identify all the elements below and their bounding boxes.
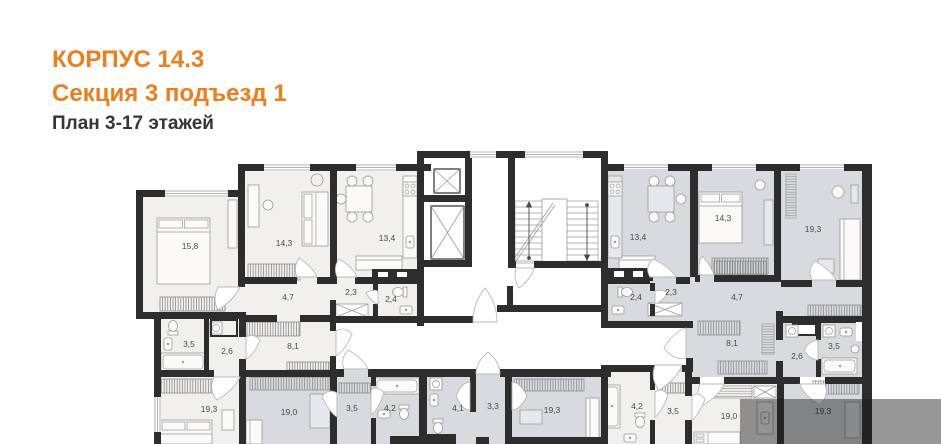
svg-text:4,2: 4,2 (631, 401, 643, 411)
svg-text:3,5: 3,5 (828, 341, 840, 351)
svg-text:14,3: 14,3 (276, 238, 293, 248)
svg-text:4,1: 4,1 (452, 403, 464, 413)
svg-text:2,4: 2,4 (385, 294, 397, 304)
svg-text:3,5: 3,5 (183, 339, 195, 349)
svg-text:14,3: 14,3 (715, 213, 732, 223)
svg-text:8,1: 8,1 (287, 341, 299, 351)
svg-text:4,7: 4,7 (731, 292, 743, 302)
svg-text:4,2: 4,2 (384, 403, 396, 413)
svg-text:13,4: 13,4 (630, 232, 647, 242)
svg-text:2,3: 2,3 (345, 287, 357, 297)
svg-text:19,3: 19,3 (201, 404, 218, 414)
svg-text:3,3: 3,3 (487, 401, 499, 411)
svg-text:3,5: 3,5 (346, 403, 358, 413)
svg-text:19,3: 19,3 (544, 405, 561, 415)
svg-text:2,3: 2,3 (665, 287, 677, 297)
svg-text:2,4: 2,4 (630, 292, 642, 302)
svg-text:15,8: 15,8 (182, 241, 199, 251)
svg-text:8,1: 8,1 (726, 338, 738, 348)
svg-text:13,4: 13,4 (379, 233, 396, 243)
svg-text:19,0: 19,0 (281, 407, 298, 417)
svg-text:3,5: 3,5 (667, 406, 679, 416)
svg-text:19,0: 19,0 (721, 411, 738, 421)
svg-text:4,7: 4,7 (282, 292, 294, 302)
svg-text:2,6: 2,6 (221, 346, 233, 356)
svg-text:2,6: 2,6 (791, 351, 803, 361)
svg-text:19,3: 19,3 (805, 224, 822, 234)
